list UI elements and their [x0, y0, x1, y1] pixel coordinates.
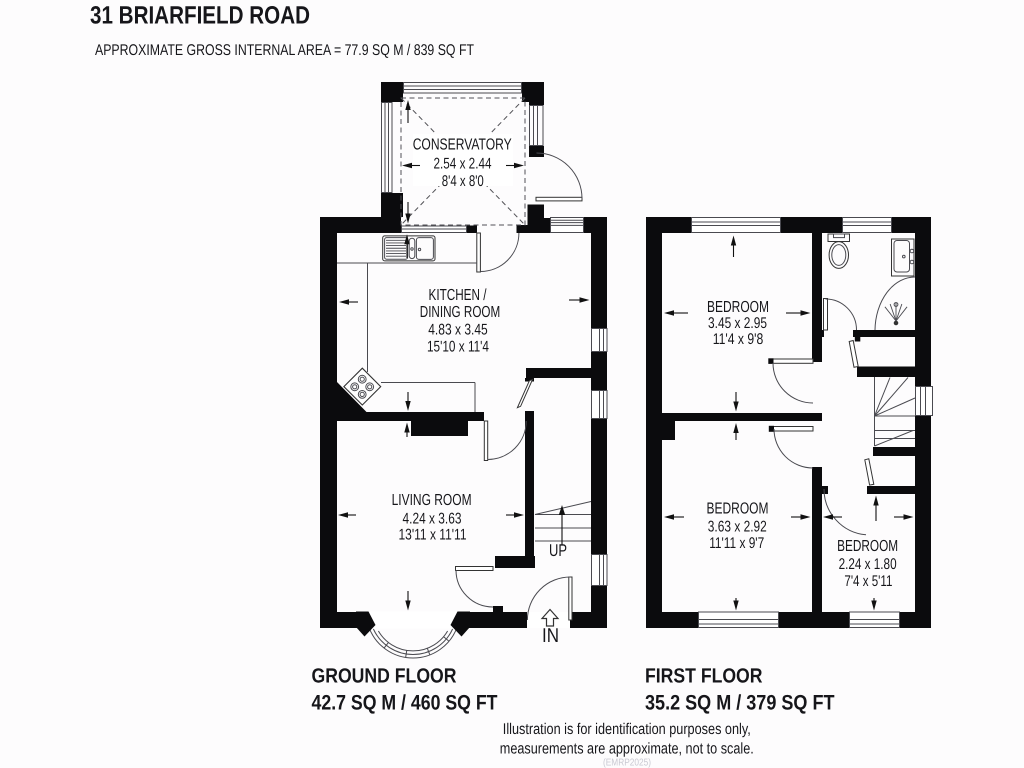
svg-text:APPROXIMATE GROSS INTERNAL ARE: APPROXIMATE GROSS INTERNAL AREA = 77.9 S…: [95, 42, 474, 59]
svg-text:2.54 x 2.44: 2.54 x 2.44: [434, 155, 492, 172]
svg-text:IN: IN: [542, 625, 559, 647]
svg-text:4.83 x 3.45: 4.83 x 3.45: [428, 322, 488, 339]
svg-text:11'4 x 9'8: 11'4 x 9'8: [713, 331, 764, 348]
svg-text:LIVING ROOM: LIVING ROOM: [392, 492, 472, 509]
svg-text:2.24 x 1.80: 2.24 x 1.80: [839, 556, 897, 573]
svg-text:31 BRIARFIELD ROAD: 31 BRIARFIELD ROAD: [90, 2, 310, 30]
svg-text:4.24 x 3.63: 4.24 x 3.63: [403, 510, 462, 527]
svg-text:BEDROOM: BEDROOM: [707, 299, 769, 316]
svg-text:3.63 x 2.92: 3.63 x 2.92: [708, 519, 767, 536]
svg-text:15'10 x 11'4: 15'10 x 11'4: [427, 338, 489, 355]
svg-text:35.2 SQ M / 379 SQ FT: 35.2 SQ M / 379 SQ FT: [645, 692, 835, 715]
svg-text:BEDROOM: BEDROOM: [707, 501, 769, 518]
svg-text:13'11 x 11'11: 13'11 x 11'11: [399, 527, 467, 544]
svg-text:7'4 x 5'11: 7'4 x 5'11: [844, 573, 892, 590]
svg-text:3.45 x 2.95: 3.45 x 2.95: [708, 315, 767, 332]
svg-text:GROUND FLOOR: GROUND FLOOR: [312, 665, 457, 688]
svg-text:CONSERVATORY: CONSERVATORY: [413, 137, 512, 154]
svg-text:measurements are approximate,: measurements are approximate, not to sca…: [500, 741, 754, 758]
svg-text:DINING ROOM: DINING ROOM: [420, 304, 501, 321]
svg-text:42.7 SQ M / 460 SQ FT: 42.7 SQ M / 460 SQ FT: [312, 692, 498, 715]
svg-text:8'4 x 8'0: 8'4 x 8'0: [442, 173, 484, 190]
svg-text:Illustration is for identifica: Illustration is for identification purpo…: [503, 721, 751, 738]
svg-text:KITCHEN /: KITCHEN /: [429, 287, 487, 304]
svg-text:BEDROOM: BEDROOM: [837, 538, 898, 555]
svg-text:UP: UP: [549, 541, 567, 560]
svg-text:11'11 x 9'7: 11'11 x 9'7: [709, 535, 764, 552]
svg-text:FIRST FLOOR: FIRST FLOOR: [645, 665, 763, 688]
svg-text:(EMRP2025): (EMRP2025): [603, 758, 651, 768]
